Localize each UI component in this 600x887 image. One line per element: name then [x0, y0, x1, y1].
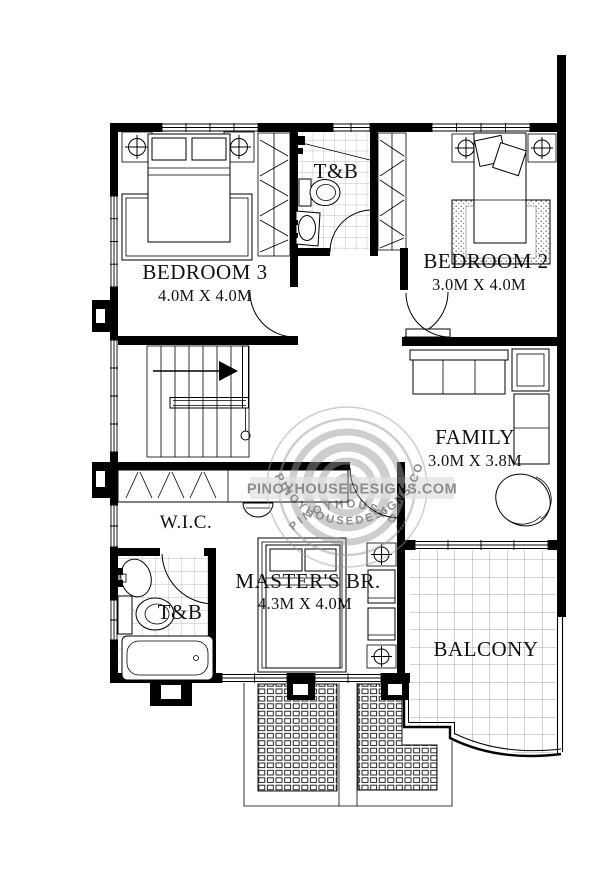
single-bed-icon: [474, 133, 526, 243]
nightstand: [368, 608, 395, 640]
bedroom3-door-swing: [250, 292, 294, 337]
window-top-bedroom2: [432, 123, 530, 132]
stair-railing: [170, 346, 250, 440]
family-door: [406, 293, 450, 337]
balcony-label: BALCONY: [433, 637, 538, 661]
balcony-railing: [558, 617, 563, 753]
window-bottom-master-1: [222, 673, 287, 683]
wic-label: W.I.C.: [160, 512, 212, 533]
roof-gap-band: [339, 679, 357, 806]
closet-hangers-icon: [258, 133, 290, 256]
stairs: [147, 346, 250, 457]
toilet-icon: [299, 179, 340, 206]
bedroom2-dims: 3.0M X 4.0M: [432, 275, 526, 294]
sofa-icon: [410, 350, 508, 394]
window-bottom-master-2: [315, 673, 381, 683]
closet-hangers-icon: [126, 472, 216, 498]
armchair-icon: [486, 464, 560, 536]
family-dims: 3.0M X 3.8M: [428, 451, 522, 470]
ceiling-light-icon: [367, 645, 396, 668]
floor-plan-canvas: BEDROOM 3 4.0M X 4.0M T&B: [0, 0, 600, 887]
bathtub-icon: [122, 636, 213, 680]
window-left-bedroom3: [110, 196, 118, 287]
room-family: FAMILY 3.0M X 3.8M: [406, 293, 560, 536]
window-left-stairs: [110, 340, 118, 452]
tnb-master-label: T&B: [158, 600, 203, 624]
window-top-bedroom3: [162, 123, 258, 132]
closet-hangers-icon: [378, 133, 406, 250]
double-bed-icon: [148, 134, 230, 242]
roof-hatch-left: [258, 684, 337, 791]
direction-arrow-icon: [153, 361, 238, 381]
top-right-wall-stub: [557, 55, 566, 132]
window-left-wic: [110, 505, 118, 547]
ceiling-light-icon: [528, 134, 556, 162]
bedroom2-label: BEDROOM 2: [423, 249, 548, 273]
bedroom3-label: BEDROOM 3: [142, 260, 267, 284]
room-bedroom3: BEDROOM 3 4.0M X 4.0M: [122, 132, 290, 305]
bedroom3-dims: 4.0M X 4.0M: [158, 286, 252, 305]
room-master: MASTER'S BR. 4.3M X 4.0M: [235, 538, 396, 672]
side-table: [512, 349, 549, 391]
family-label: FAMILY: [435, 425, 515, 449]
window-left-tnb-master: [110, 600, 118, 640]
window-top-tnb: [333, 123, 370, 132]
master-label: MASTER'S BR.: [235, 569, 380, 593]
master-dims: 4.3M X 4.0M: [258, 594, 352, 613]
sink-icon: [294, 211, 320, 246]
window-family-balcony: [415, 540, 548, 550]
floor-plan-page: BEDROOM 3 4.0M X 4.0M T&B: [0, 0, 600, 887]
tnb-top-label: T&B: [314, 159, 359, 183]
